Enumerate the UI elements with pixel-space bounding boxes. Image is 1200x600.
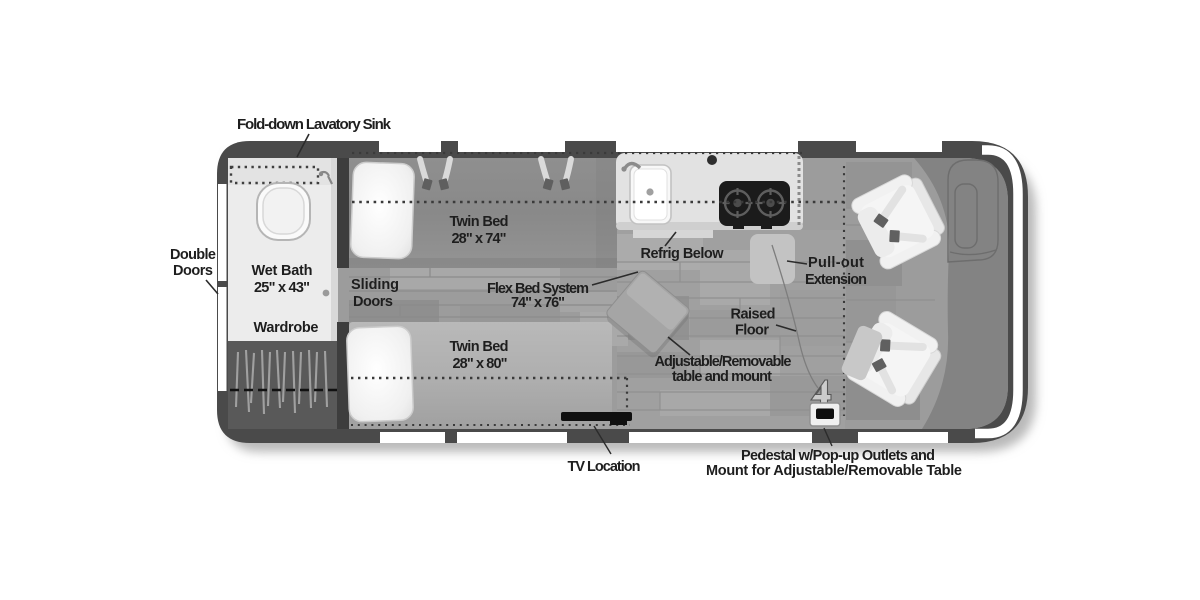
svg-text:Wet Bath: Wet Bath [252, 263, 313, 279]
svg-text:25" x 43": 25" x 43" [254, 280, 310, 296]
svg-text:table and mount: table and mount [672, 369, 772, 385]
svg-text:Sliding: Sliding [351, 277, 399, 293]
svg-text:Doors: Doors [353, 294, 393, 310]
svg-text:Extension: Extension [805, 272, 867, 288]
svg-text:74" x 76": 74" x 76" [511, 295, 565, 311]
svg-text:28" x 80": 28" x 80" [453, 356, 508, 372]
svg-text:Double: Double [170, 247, 216, 263]
svg-text:Wardrobe: Wardrobe [254, 320, 319, 336]
svg-text:TV Location: TV Location [568, 459, 641, 475]
svg-text:Fold-down Lavatory Sink: Fold-down Lavatory Sink [237, 116, 392, 133]
svg-text:Pedestal w/Pop-up Outlets and: Pedestal w/Pop-up Outlets and [741, 448, 935, 464]
svg-text:Adjustable/Removable: Adjustable/Removable [655, 354, 792, 370]
svg-text:Twin Bed: Twin Bed [450, 339, 509, 355]
svg-text:Raised: Raised [731, 307, 776, 323]
svg-text:Refrig Below: Refrig Below [641, 246, 725, 262]
svg-text:Mount for Adjustable/Removable: Mount for Adjustable/Removable Table [706, 463, 962, 479]
svg-text:Pull-out: Pull-out [808, 255, 864, 271]
svg-text:28" x 74": 28" x 74" [452, 231, 507, 247]
svg-text:Doors: Doors [173, 263, 213, 279]
svg-text:Floor: Floor [735, 323, 769, 339]
svg-text:Twin Bed: Twin Bed [450, 214, 509, 230]
